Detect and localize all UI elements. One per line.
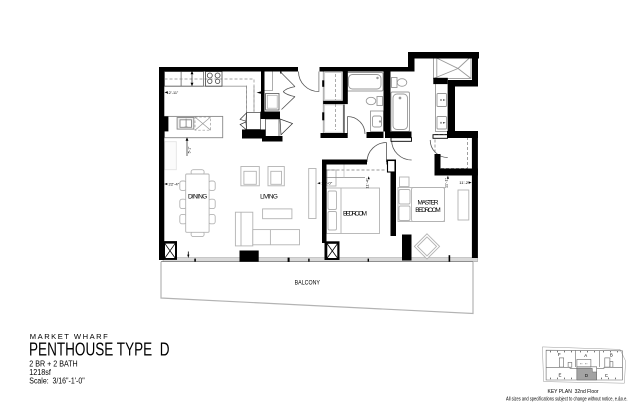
svg-text:KEY PLAN 32nd Floor: KEY PLAN 32nd Floor [548, 389, 599, 395]
svg-text:F: F [558, 352, 561, 357]
svg-text:E: E [559, 372, 562, 377]
svg-text:MASTER: MASTER [418, 199, 439, 206]
svg-text:10'-0": 10'-0" [321, 182, 333, 186]
svg-text:BEDROOM: BEDROOM [343, 211, 367, 218]
svg-text:5'-1": 5'-1" [188, 146, 192, 154]
svg-text:Scale: 3/16"-1'-0": Scale: 3/16"-1'-0" [29, 376, 85, 385]
svg-text:BEDROOM: BEDROOM [415, 207, 440, 214]
svg-text:B: B [610, 353, 613, 358]
svg-text:22'-4": 22'-4" [169, 182, 180, 186]
svg-text:LIVING: LIVING [260, 194, 278, 201]
svg-text:DINING: DINING [188, 194, 207, 201]
svg-text:C: C [605, 373, 608, 378]
svg-text:A: A [584, 353, 587, 358]
svg-text:D: D [585, 373, 588, 378]
svg-text:PENTHOUSE TYPE D: PENTHOUSE TYPE D [29, 338, 170, 359]
svg-text:All sizes and specifications s: All sizes and specifications subject to … [506, 397, 628, 403]
svg-text:12'-11": 12'-11" [167, 91, 179, 95]
svg-text:BALCONY: BALCONY [295, 280, 320, 287]
